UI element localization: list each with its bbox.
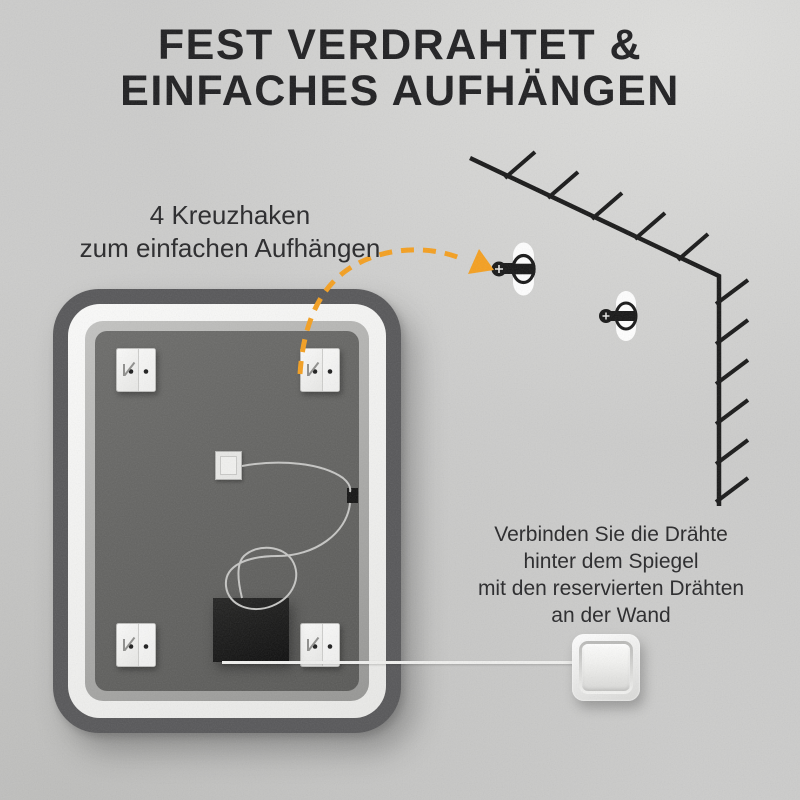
wall-hatch-marks — [505, 152, 748, 502]
hooks-annotation: 4 Kreuzhaken zum einfachen Aufhängen — [30, 199, 430, 265]
wall-anchor-icon — [599, 291, 636, 341]
led-driver-box — [213, 598, 289, 662]
wiring-annotation-line4: an der Wand — [450, 602, 772, 629]
mirror-back — [53, 289, 401, 733]
wire-connector — [347, 488, 358, 503]
wiring-annotation-line1: Verbinden Sie die Drähte — [450, 521, 772, 548]
light-switch-bezel — [579, 641, 633, 694]
product-infographic: FEST VERDRAHTET & EINFACHES AUFHÄNGEN 4 … — [0, 0, 800, 800]
mirror-led-ring — [68, 304, 386, 718]
wall-corner-lines — [470, 158, 719, 506]
hooks-annotation-line1: 4 Kreuzhaken — [30, 199, 430, 232]
junction-box-cover — [220, 456, 237, 475]
switch-rocker — [582, 644, 630, 691]
mirror-back-panel — [95, 331, 359, 691]
cross-hook-plate-icon — [116, 623, 156, 667]
wiring-annotation-line3: mit den reservierten Drähten — [450, 575, 772, 602]
arrowhead-icon — [468, 249, 494, 274]
wiring-annotation: Verbinden Sie die Drähte hinter dem Spie… — [450, 521, 772, 629]
page-title-line1: FEST VERDRAHTET & — [0, 22, 800, 68]
wall-anchor-icon — [492, 243, 535, 296]
power-cable — [222, 661, 576, 664]
hooks-annotation-line2: zum einfachen Aufhängen — [30, 232, 430, 265]
wiring-annotation-line2: hinter dem Spiegel — [450, 548, 772, 575]
cross-hook-plate-icon — [300, 348, 340, 392]
cross-hook-plate-icon — [116, 348, 156, 392]
mirror-inner-frame — [85, 321, 369, 701]
junction-box — [215, 451, 242, 480]
page-title: FEST VERDRAHTET & EINFACHES AUFHÄNGEN — [0, 22, 800, 114]
page-title-line2: EINFACHES AUFHÄNGEN — [0, 68, 800, 114]
light-switch — [572, 634, 640, 701]
